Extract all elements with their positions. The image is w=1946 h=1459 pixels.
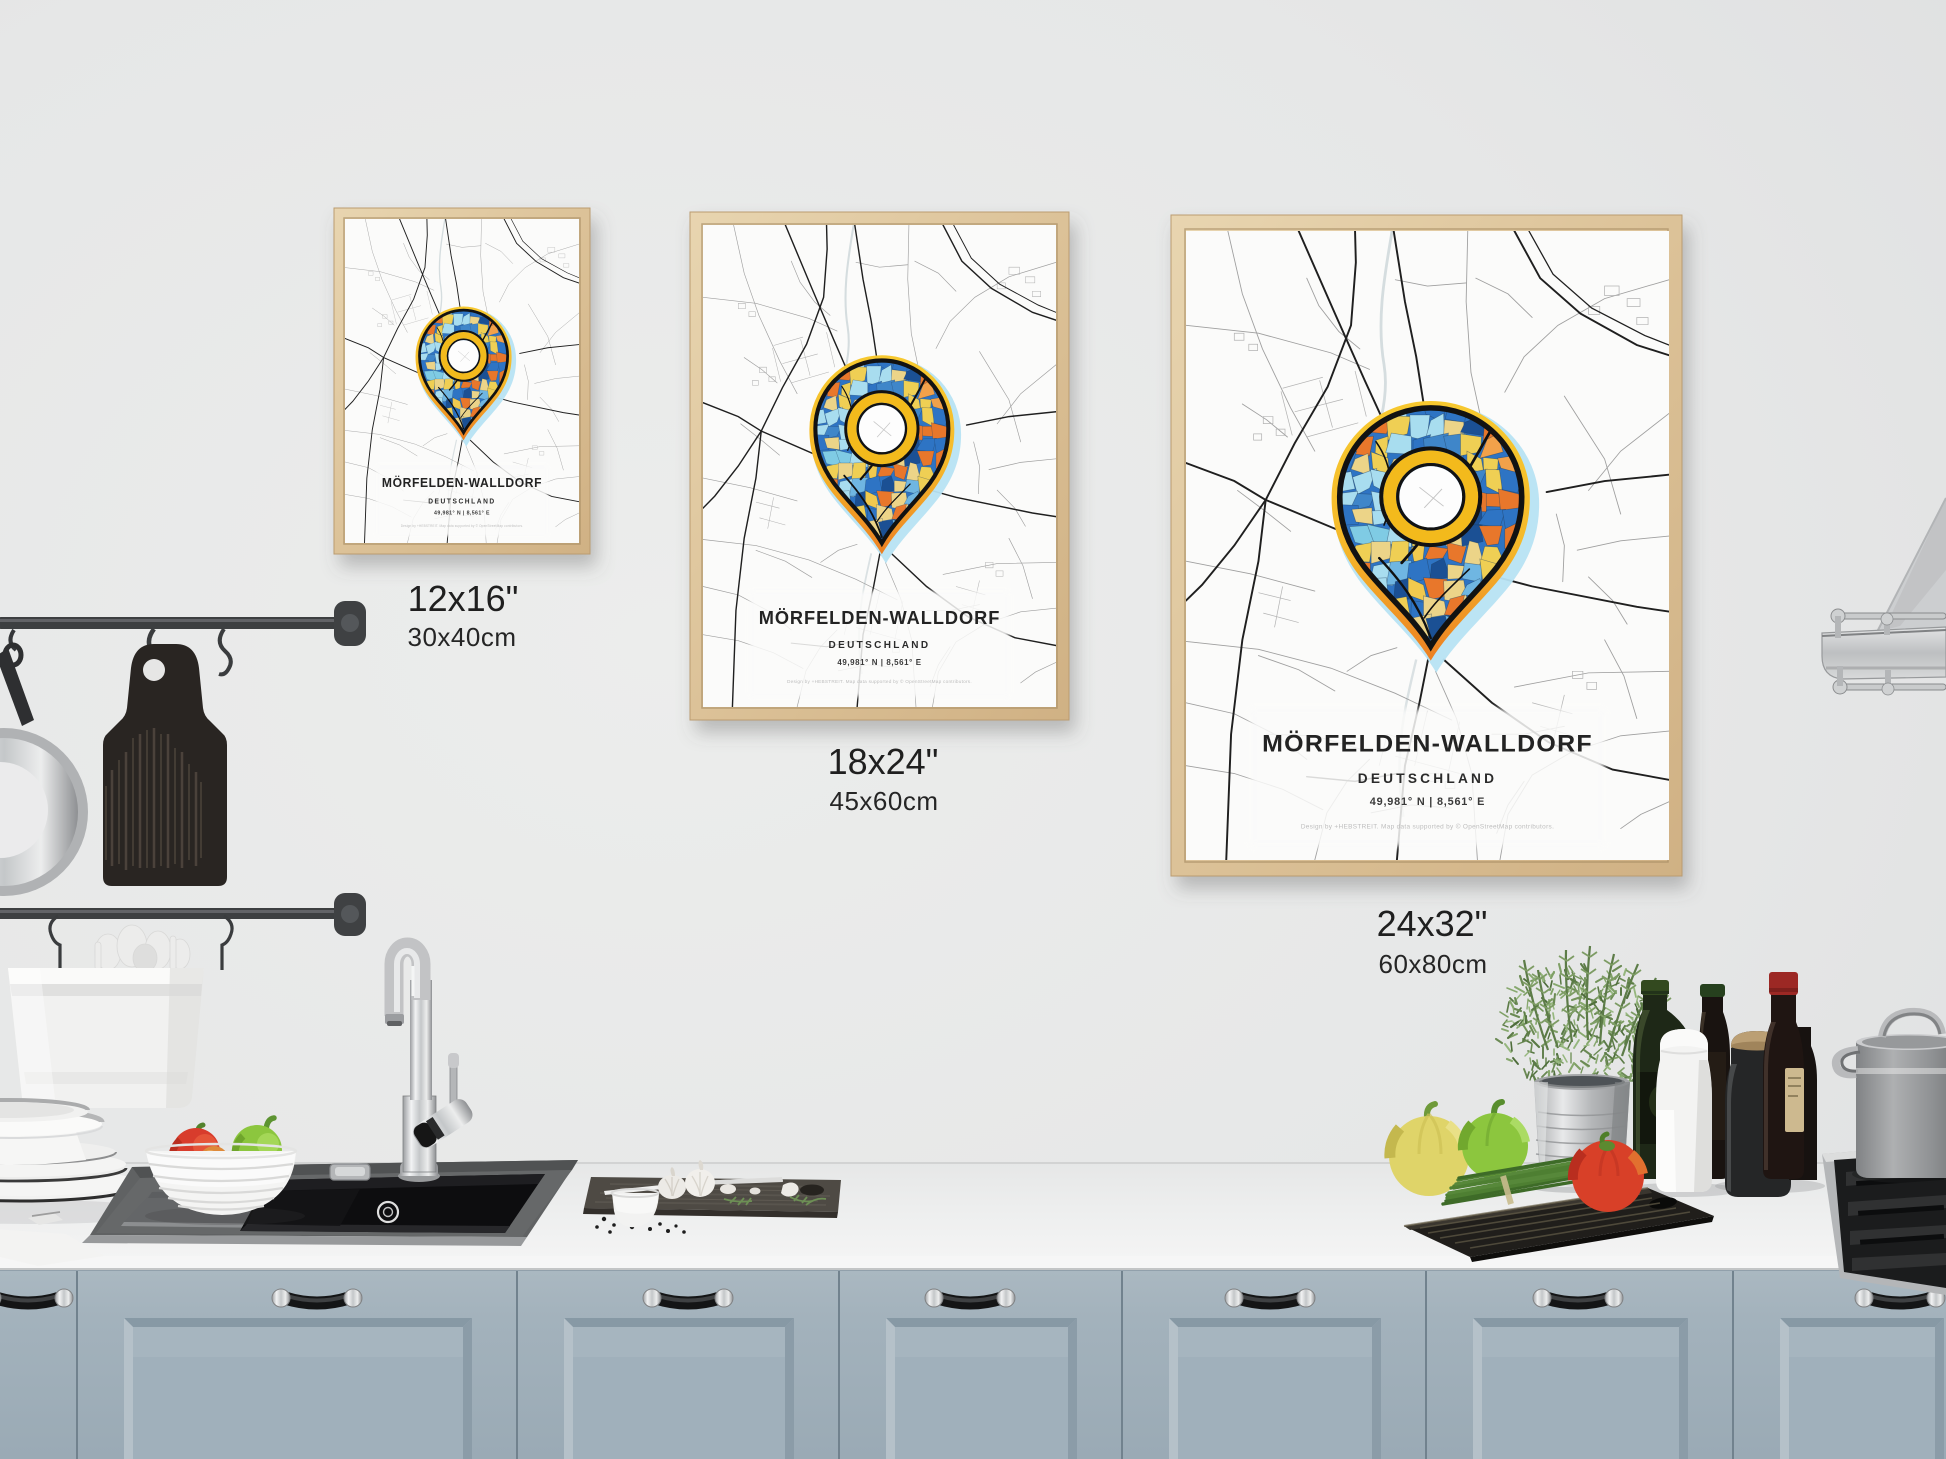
svg-text:30x40cm: 30x40cm: [408, 622, 517, 652]
svg-text:24x32": 24x32": [1377, 903, 1488, 944]
svg-text:60x80cm: 60x80cm: [1379, 949, 1488, 979]
svg-text:45x60cm: 45x60cm: [830, 786, 939, 816]
svg-text:18x24": 18x24": [828, 741, 939, 782]
svg-text:12x16": 12x16": [408, 578, 519, 619]
